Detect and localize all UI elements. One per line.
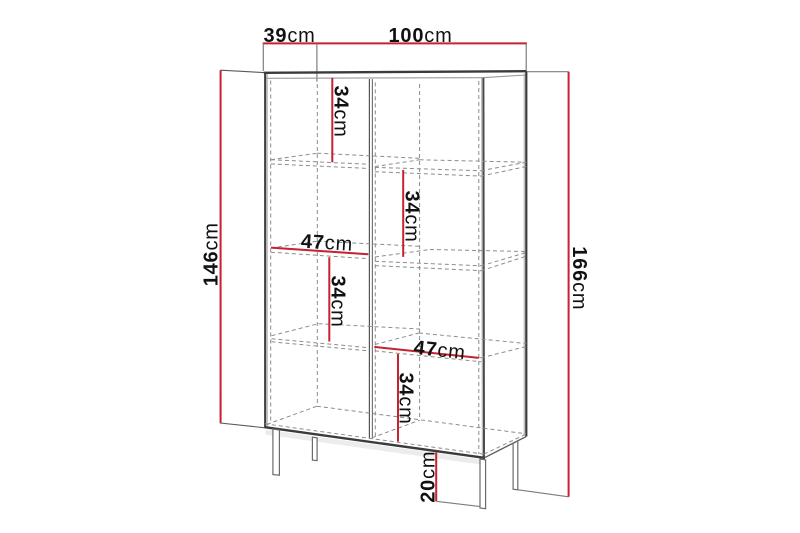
svg-text:146cm: 146cm — [200, 222, 222, 286]
svg-text:34cm: 34cm — [400, 191, 422, 243]
svg-text:34cm: 34cm — [327, 276, 349, 328]
svg-text:166cm: 166cm — [568, 246, 590, 310]
svg-text:34cm: 34cm — [329, 86, 351, 138]
svg-text:39cm: 39cm — [264, 25, 316, 47]
svg-text:100cm: 100cm — [389, 25, 453, 47]
svg-text:20cm: 20cm — [417, 451, 439, 503]
svg-text:47cm: 47cm — [300, 231, 353, 256]
svg-text:34cm: 34cm — [395, 373, 417, 425]
